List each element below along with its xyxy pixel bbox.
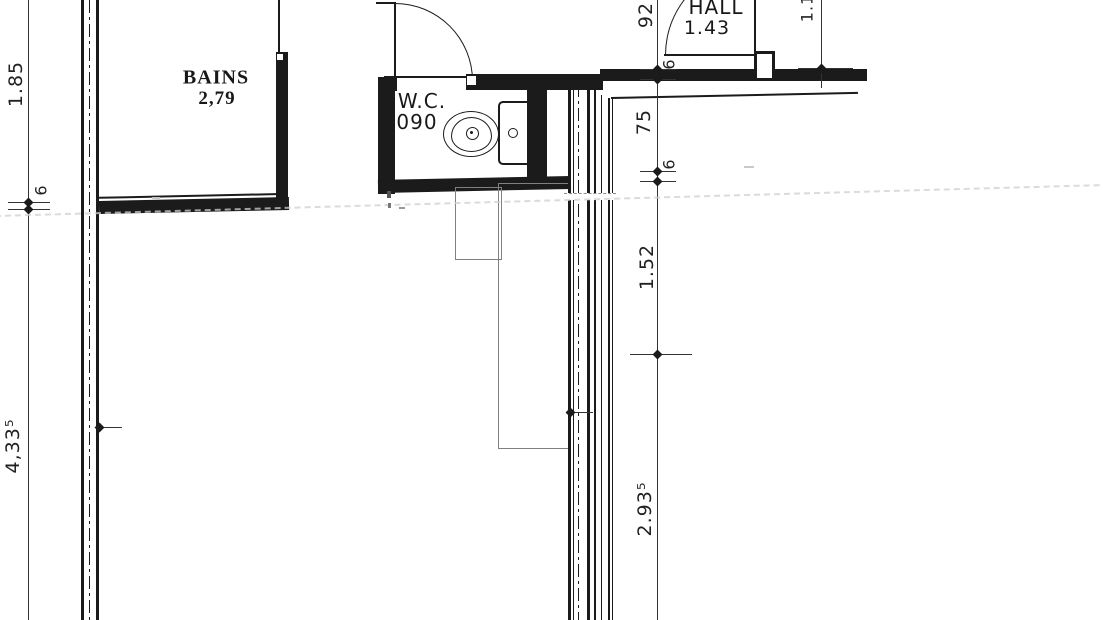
- main-wall-line-7: [612, 98, 614, 620]
- shaft-rect-small: [455, 187, 502, 260]
- bains-right-wall-thin: [278, 0, 280, 53]
- shaft-rect-large: [498, 183, 570, 449]
- main-wall-line-2: [573, 86, 575, 620]
- dim-center-wall-top: 6: [660, 58, 679, 69]
- dim-left-lower: 4,33⁵: [2, 419, 24, 474]
- dim-center-wall-mid: 6: [660, 158, 679, 169]
- dimension-line-right: [821, 0, 822, 88]
- dimension-marker: [653, 350, 663, 360]
- scan-speck: [388, 203, 391, 208]
- bains-right-wall-thick: [276, 52, 288, 201]
- toilet-drain-dot: [470, 131, 473, 134]
- dimension-line-left: [28, 0, 29, 620]
- dim-center-lower: 2.93⁵: [634, 482, 656, 537]
- bains-room-name: BAINS: [183, 67, 249, 90]
- main-wall-line-4: [594, 90, 596, 620]
- scan-speck: [744, 166, 754, 168]
- toilet-cistern-button: [508, 128, 518, 138]
- dimension-marker: [653, 177, 663, 187]
- dim-center-mid: 1.52: [636, 244, 658, 290]
- bains-wall-notch: [277, 54, 283, 60]
- dimension-line-center: [657, 0, 658, 620]
- dim-left-upper: 1.85: [5, 61, 27, 107]
- main-wall-line-5: [601, 95, 603, 620]
- main-wall-axis-line: [578, 84, 579, 620]
- dim-center-upper: 75: [633, 109, 655, 135]
- main-wall-line-1: [568, 86, 571, 620]
- wc-door-jamb-pocket: [467, 76, 476, 85]
- left-wall-outer-face: [81, 0, 84, 620]
- room-inner-face-line: [611, 92, 858, 99]
- main-wall-line-3: [587, 90, 590, 620]
- hall-room-area: 1.43: [684, 17, 730, 39]
- left-wall-inner-face: [96, 0, 99, 620]
- scan-speck: [387, 191, 391, 198]
- bains-room-area: 2,79: [198, 88, 235, 110]
- dim-left-wall-thickness: 6: [32, 184, 51, 195]
- dim-center-top: 92: [635, 2, 657, 28]
- floor-plan-scan: 1.85 6 4,33⁵ BAINS 2,79 W.C. 090: [0, 0, 1103, 620]
- scan-speck: [152, 197, 160, 199]
- hall-pillar: [754, 51, 775, 78]
- dim-right-top: 1.1: [798, 0, 817, 22]
- left-wall-axis-line: [89, 0, 90, 620]
- wc-door-leaf-tick: [376, 2, 395, 4]
- wc-door-swing-arc: [395, 3, 473, 81]
- wc-room-area: 090: [396, 110, 437, 134]
- main-wall-line-6: [608, 98, 610, 620]
- wc-left-wall: [378, 77, 395, 194]
- scan-speck: [399, 207, 405, 209]
